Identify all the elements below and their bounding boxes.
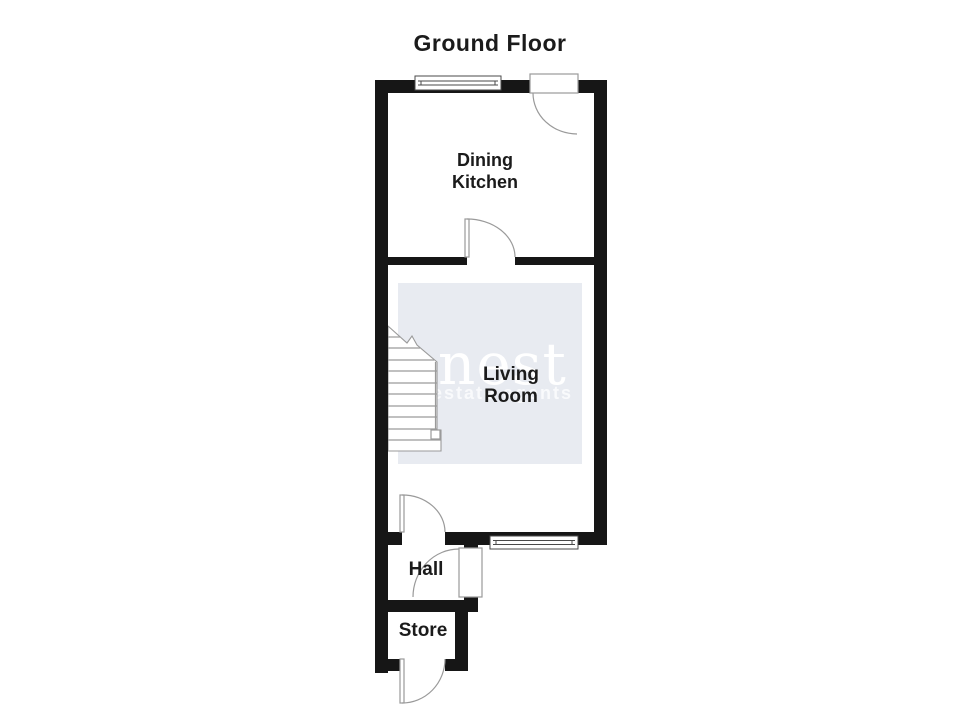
door-swing-arc (533, 93, 577, 134)
room-label-store: Store (373, 620, 473, 642)
door-leaf (400, 495, 404, 532)
floor-plan-drawing: nest estate agents (0, 0, 980, 712)
window-living-bottom-symbol (490, 536, 578, 549)
wall-store-bottom-left (375, 659, 402, 671)
wall-left (375, 80, 388, 673)
wall-divider-dining-left (388, 257, 467, 265)
room-label-living-room: Living Room (431, 364, 591, 408)
room-label-dining-kitchen: Dining Kitchen (405, 150, 565, 193)
door-leaf (465, 219, 469, 257)
door-leaf (400, 659, 404, 703)
window-top-symbol (415, 76, 501, 90)
wall-store-bottom-right (445, 659, 468, 671)
wall-living-bottom-stub (388, 532, 402, 545)
room-label-line: Room (431, 386, 591, 408)
floor-plan-page: nest estate agents (0, 0, 980, 712)
room-label-line: Kitchen (405, 172, 565, 194)
door-panel (530, 74, 578, 93)
wall-divider-dining-right (515, 257, 594, 265)
window-frame (490, 536, 578, 549)
door-swing-arc (467, 219, 515, 257)
door-swing-arc (402, 495, 445, 532)
stair-newel-post (431, 430, 440, 439)
door-entry-top (530, 74, 578, 134)
room-label-line: Dining (405, 150, 565, 172)
door-store-front (400, 659, 445, 703)
door-living-to-hall (400, 495, 445, 532)
room-label-line: Hall (376, 559, 476, 581)
room-label-line: Store (373, 620, 473, 642)
window-frame (415, 76, 501, 90)
room-label-hall: Hall (376, 559, 476, 581)
door-swing-arc (402, 659, 445, 703)
wall-right (594, 80, 607, 545)
room-label-line: Living (431, 364, 591, 386)
door-dining-to-living (465, 219, 515, 257)
page-title: Ground Floor (0, 30, 980, 57)
